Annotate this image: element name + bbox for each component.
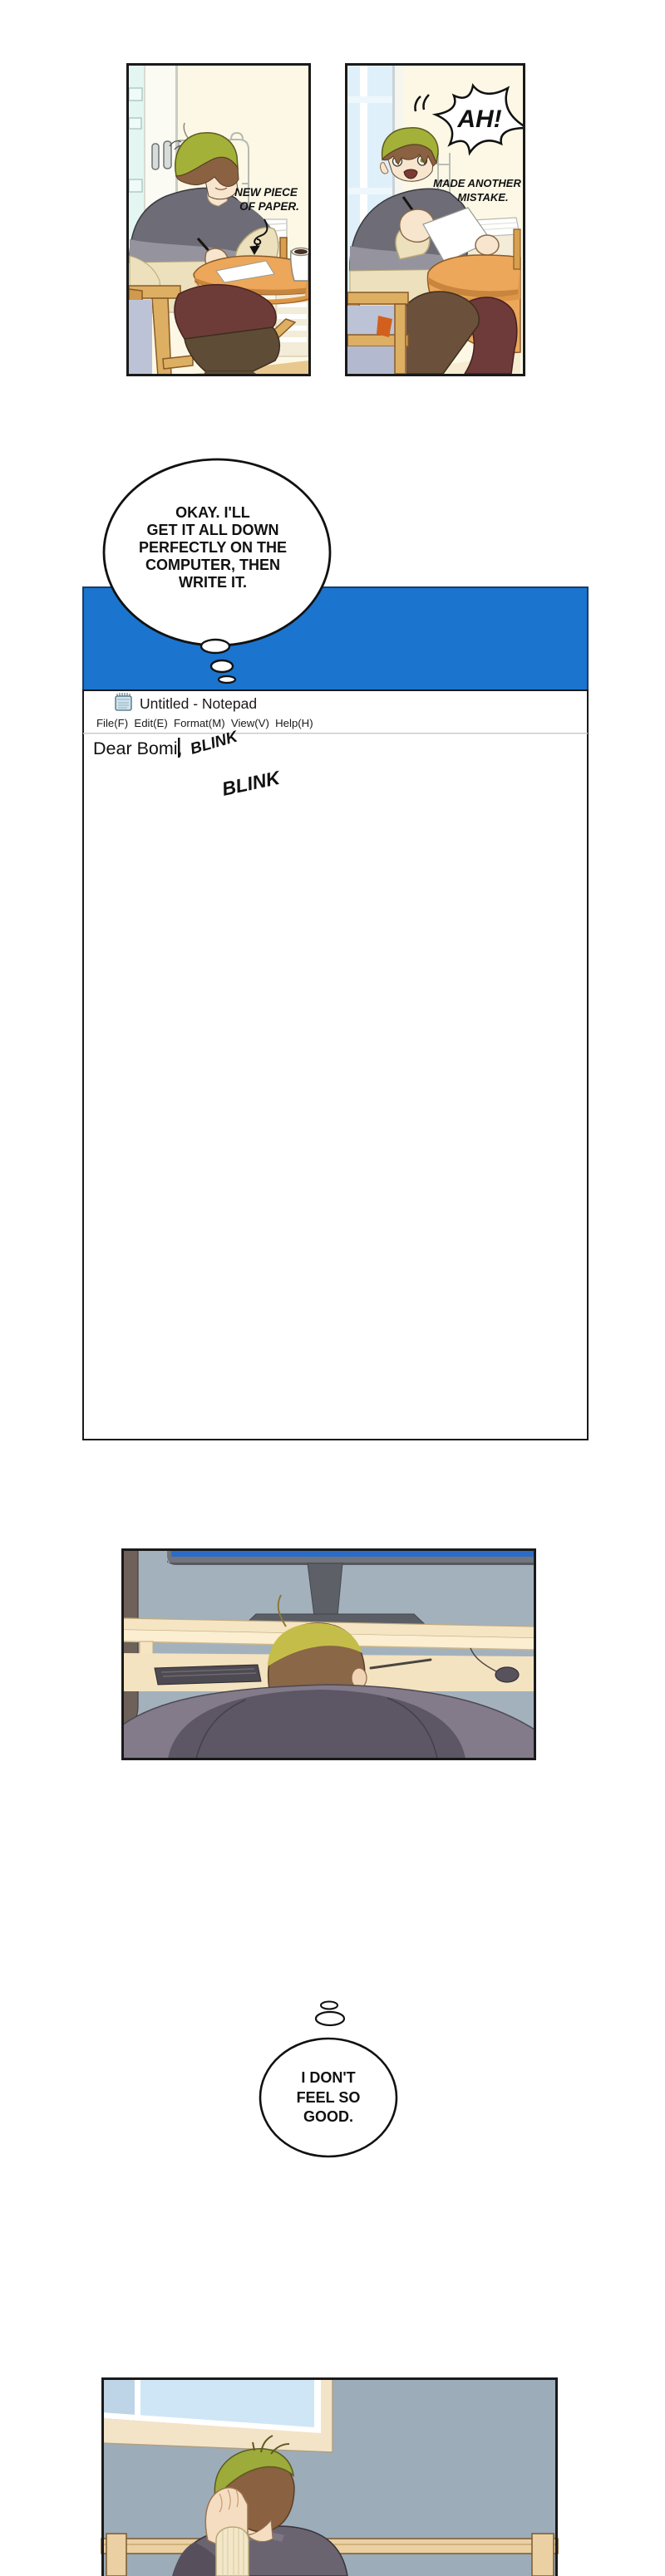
svg-text:OKAY. I'LL: OKAY. I'LL bbox=[175, 504, 250, 521]
svg-text:FEEL SO: FEEL SO bbox=[297, 2089, 361, 2106]
svg-text:GET IT ALL DOWN: GET IT ALL DOWN bbox=[147, 522, 279, 538]
svg-text:PERFECTLY ON THE: PERFECTLY ON THE bbox=[139, 539, 287, 556]
svg-text:NEW PIECE: NEW PIECE bbox=[234, 186, 298, 199]
svg-text:I DON'T: I DON'T bbox=[301, 2069, 355, 2086]
svg-text:MADE ANOTHER: MADE ANOTHER bbox=[433, 177, 521, 189]
svg-text:Untitled - Notepad: Untitled - Notepad bbox=[140, 695, 257, 712]
svg-text:File(F) Edit(E) Format(M) V: File(F) Edit(E) Format(M) View(V) Help(H… bbox=[96, 717, 313, 729]
svg-text:WRITE IT.: WRITE IT. bbox=[179, 574, 247, 591]
svg-text:GOOD.: GOOD. bbox=[303, 2108, 353, 2125]
svg-text:AH!: AH! bbox=[456, 105, 501, 133]
svg-text:Dear Bomi,: Dear Bomi, bbox=[93, 738, 183, 758]
svg-text:MISTAKE.: MISTAKE. bbox=[457, 191, 508, 204]
svg-text:COMPUTER, THEN: COMPUTER, THEN bbox=[145, 557, 280, 573]
svg-text:OF PAPER.: OF PAPER. bbox=[239, 200, 299, 213]
